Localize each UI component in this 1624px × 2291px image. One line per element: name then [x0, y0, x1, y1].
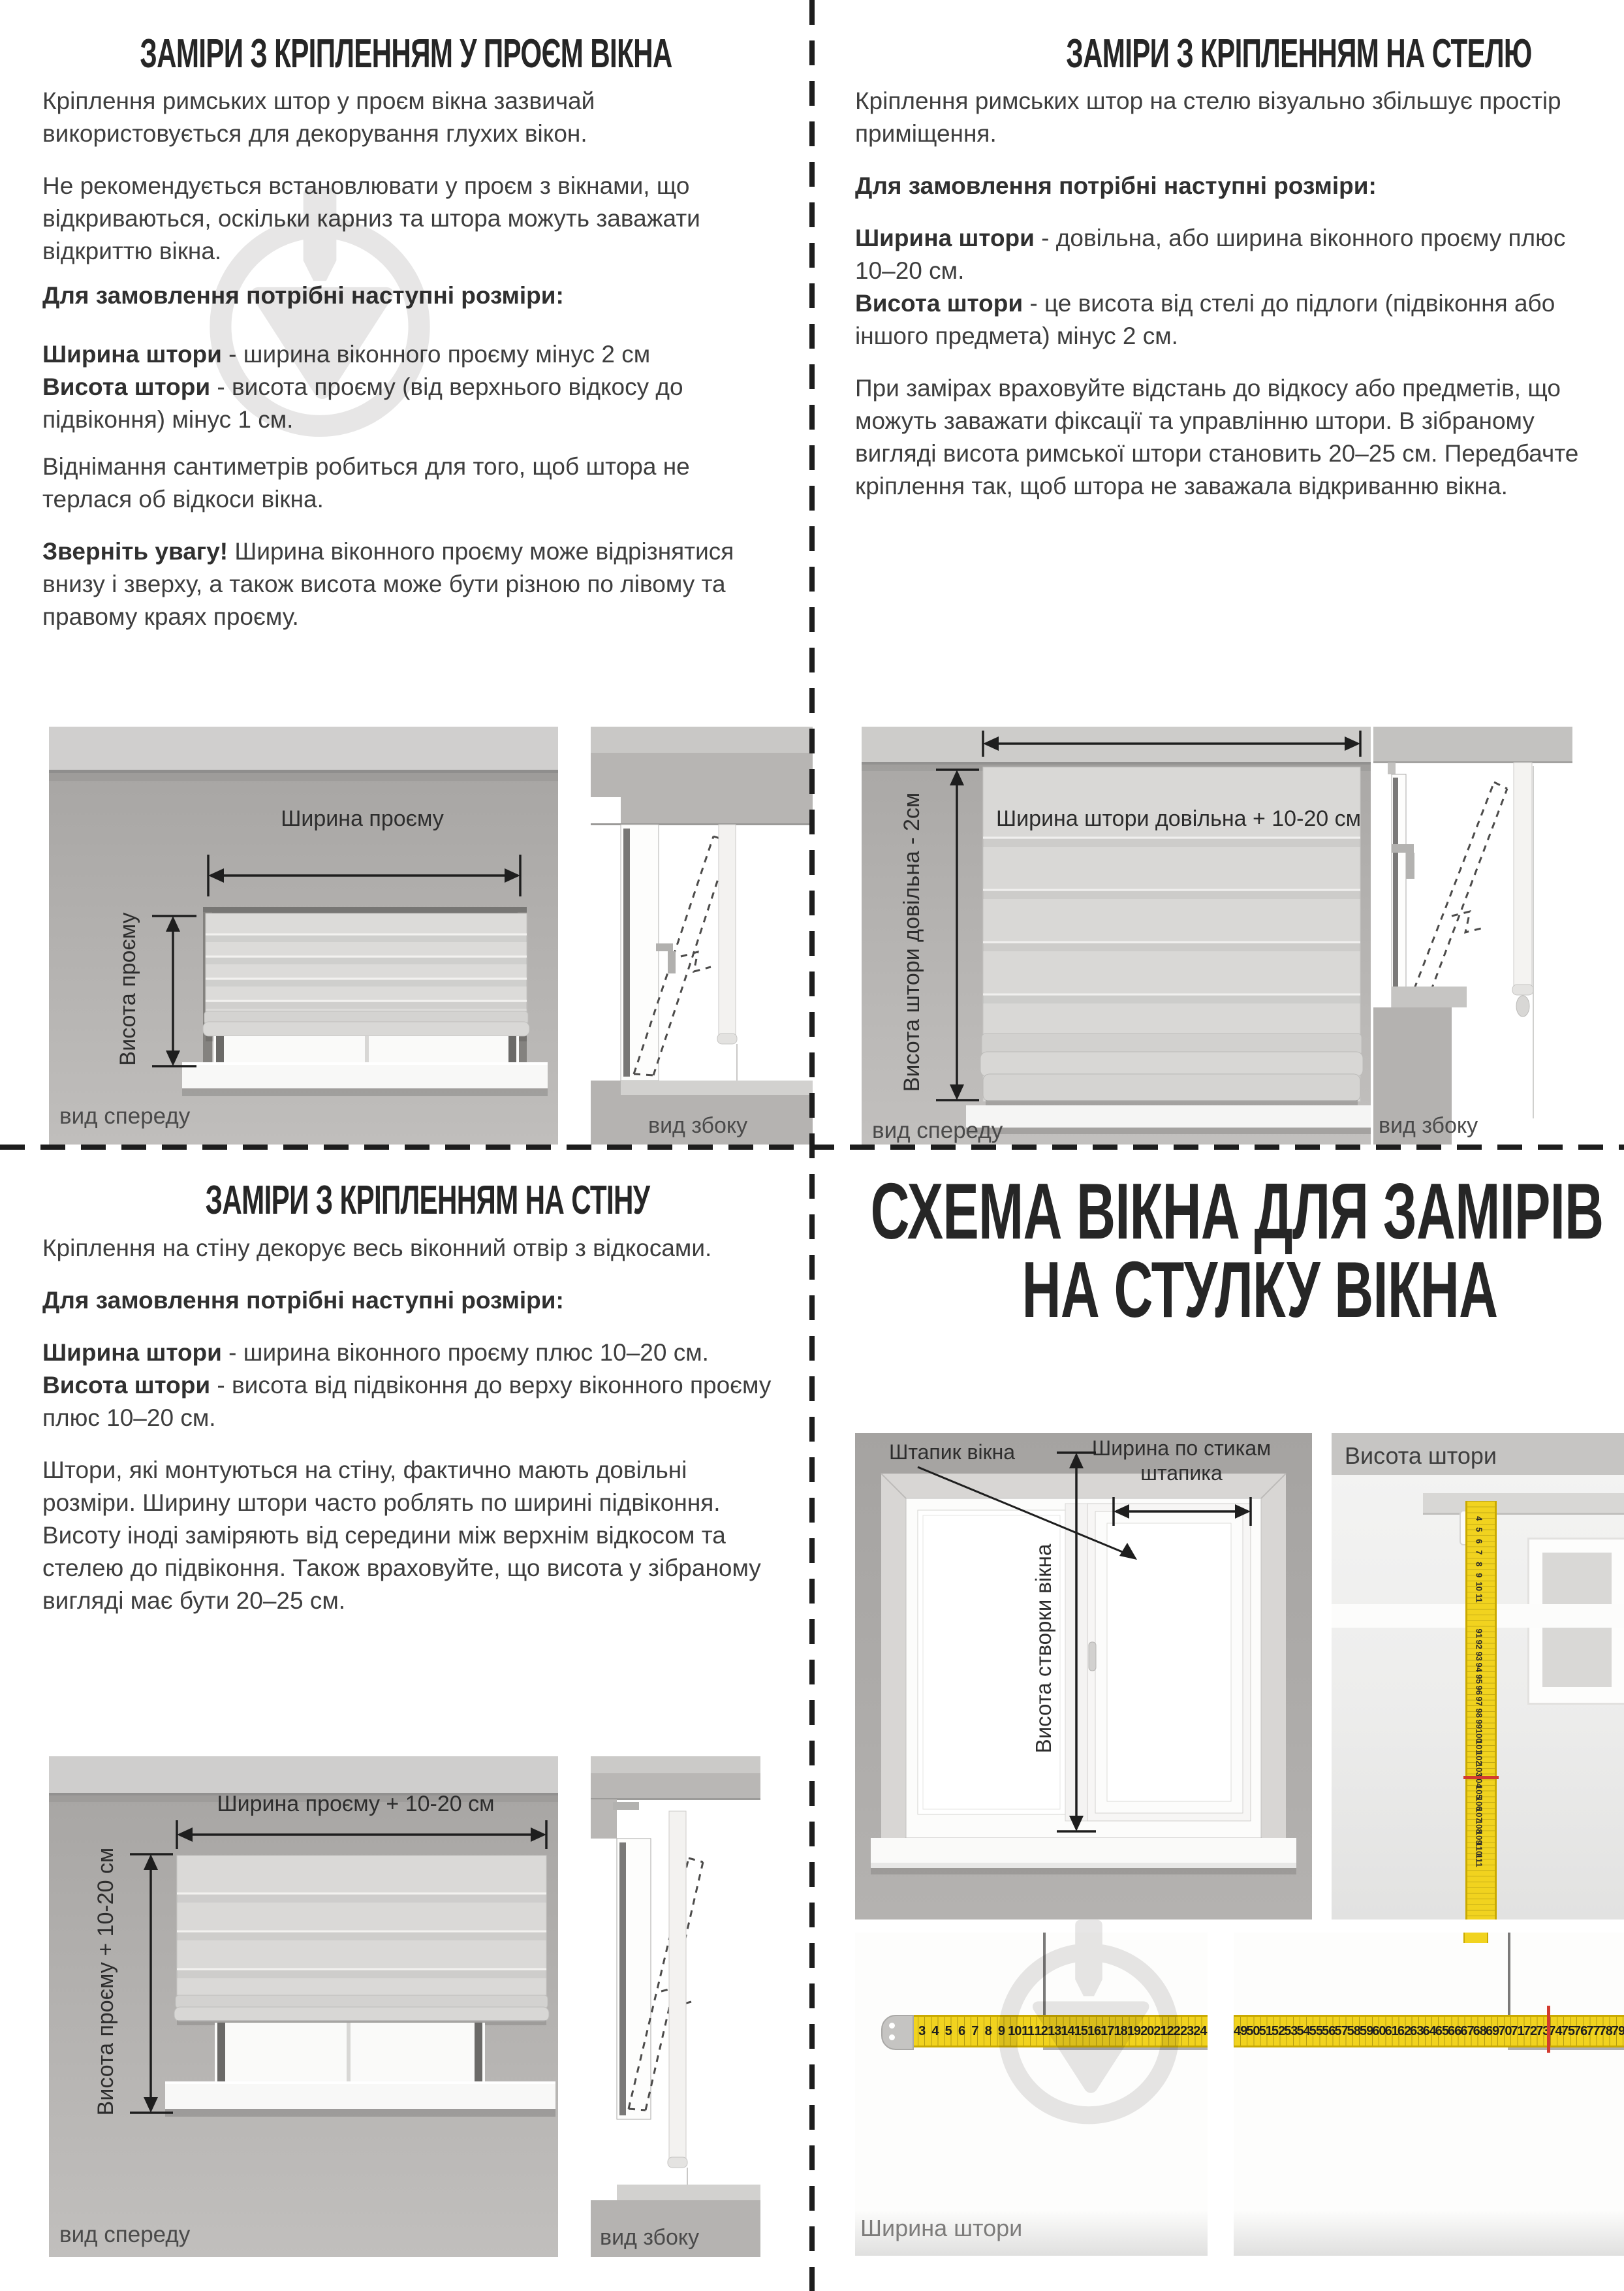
- opening-sash: [1087, 1504, 1251, 1821]
- paragraph: При замірах враховуйте відстань до відко…: [855, 372, 1587, 503]
- bead-width-label-line2: штапика: [1140, 1461, 1223, 1485]
- glazing-bead-label: Штапик вікна: [889, 1440, 1015, 1464]
- tape-number: 17: [1101, 2024, 1114, 2039]
- window-panel-left: [855, 1933, 1208, 2256]
- paragraph: Кріплення римських штор у проєм вікна за…: [42, 85, 775, 150]
- tape-number: 13: [1048, 2024, 1061, 2039]
- title-ceiling-mount: ЗАМІРИ З КРІПЛЕННЯМ НА СТЕЛЮ: [1066, 34, 1531, 74]
- roman-blind: [174, 1856, 549, 2025]
- paragraph: Для замовлення потрібні наступні розміри…: [855, 170, 1587, 202]
- tape-number: 52: [1272, 2024, 1284, 2039]
- tape-number: 24: [1193, 2024, 1206, 2039]
- tape-number: 60: [1372, 2024, 1384, 2039]
- tape-number: 75: [1561, 2024, 1574, 2039]
- tape-number: 57: [1334, 2024, 1347, 2039]
- bead-width-label-line1: Ширина по стикам: [1092, 1436, 1271, 1460]
- tape-number: 3: [915, 2024, 928, 2039]
- paragraph: Не рекомендується встановлювати у проєм …: [42, 170, 775, 268]
- paragraph: Висота штори - висота проєму (від верхнь…: [42, 371, 775, 436]
- tape-number: 66: [1448, 2024, 1460, 2039]
- window-sill: [966, 1105, 1371, 1128]
- paragraph: Для замовлення потрібні наступні розміри…: [42, 279, 775, 312]
- curtain-height-photo: 4567891011 91929394959697989910010110210…: [1332, 1433, 1624, 1920]
- title-opening-mount: ЗАМІРИ З КРІПЛЕННЯМ У ПРОЄМ ВІКНА: [140, 34, 672, 74]
- roman-blind: [203, 913, 529, 1041]
- tape-number: 23: [1180, 2024, 1193, 2039]
- paragraph: Кріплення римських штор на стелю візуаль…: [855, 85, 1587, 150]
- side-view-wall-mount: вид збоку: [591, 1756, 760, 2257]
- red-measurement-mark: [1463, 1776, 1499, 1779]
- horizontal-measuring-tape-left: 3456789101112131415161718192021222324: [911, 2015, 1208, 2047]
- tape-number: 22: [1167, 2024, 1180, 2039]
- tape-number: 15: [1074, 2024, 1087, 2039]
- window-sill: [871, 1838, 1296, 1874]
- paragraph: Штори, які монтуються на стіну, фактично…: [42, 1454, 775, 1617]
- paragraph: Ширина штори - ширина віконного проєму п…: [42, 1336, 775, 1369]
- tape-number: 61: [1385, 2024, 1398, 2039]
- tape-number: 20: [1140, 2024, 1153, 2039]
- opening-height-label: Висота проєму: [116, 912, 140, 1066]
- tape-number: 70: [1498, 2024, 1510, 2039]
- front-view-wall-mount: Ширина проєму + 10-20 см: [49, 1756, 558, 2257]
- tape-number: 56: [1322, 2024, 1334, 2039]
- curtain-width-photo: 3456789101112131415161718192021222324 49…: [855, 1933, 1624, 2256]
- paragraph: Висота штори - це висота від стелі до пі…: [855, 287, 1587, 353]
- tape-number: 19: [1127, 2024, 1140, 2039]
- window-sill: [165, 2081, 555, 2117]
- tape-number: 65: [1435, 2024, 1448, 2039]
- paragraph: Ширина штори - довільна, або ширина віко…: [855, 222, 1587, 287]
- tape-number: 4: [928, 2024, 941, 2039]
- side-view-caption: вид збоку: [648, 1113, 747, 1138]
- tape-number: 8: [981, 2024, 994, 2039]
- window-glass: [215, 2023, 485, 2081]
- text-block-wall-mount: Кріплення на стіну декорує весь віконний…: [42, 1232, 775, 1637]
- window-handle: [1089, 1642, 1096, 1671]
- tape-number: 79: [1612, 2024, 1624, 2039]
- window-sash-schematic: Штапик вікна Ширина по стикам штапика Ви…: [855, 1433, 1312, 1920]
- front-view-caption: вид спереду: [872, 1118, 1003, 1143]
- text-block-opening-mount: Кріплення римських штор у проєм вікна за…: [42, 85, 775, 653]
- side-view-caption: вид збоку: [1379, 1113, 1478, 1138]
- tape-number: 64: [1422, 2024, 1435, 2039]
- curtain-height-label: Висота штори довільна - 2см: [899, 793, 924, 1092]
- frame-edge: [1508, 2047, 1624, 2050]
- tape-number: 21: [1153, 2024, 1166, 2039]
- tape-number: 74: [1548, 2024, 1561, 2039]
- curtain-width-photo-label: Ширина штори: [860, 2215, 1022, 2242]
- tape-hook: [881, 2015, 914, 2050]
- window-panel-right: [1234, 1933, 1624, 2256]
- opening-width-label: Ширина проєму: [281, 806, 444, 831]
- tape-number: 59: [1360, 2024, 1372, 2039]
- tape-number: 6: [955, 2024, 968, 2039]
- tape-number: 11: [1473, 1586, 1484, 1609]
- horizontal-measuring-tape-right: 4950515253545556575859606162636465666768…: [1234, 2015, 1624, 2047]
- tape-number: 71: [1511, 2024, 1523, 2039]
- window-glass: [213, 1036, 519, 1062]
- horizontal-dashed-divider: [0, 1145, 1624, 1150]
- paragraph: Кріплення на стіну декорує весь віконний…: [42, 1232, 775, 1265]
- sash-height-label: Висота створки вікна: [1031, 1543, 1055, 1753]
- red-measurement-mark: [1547, 2006, 1550, 2053]
- tape-number: 68: [1473, 2024, 1486, 2039]
- tape-number: 54: [1296, 2024, 1309, 2039]
- title-wall-mount: ЗАМІРИ З КРІПЛЕННЯМ НА СТІНУ: [206, 1180, 650, 1221]
- frame-edge: [1043, 2047, 1208, 2050]
- ceiling-soffit: [1423, 1493, 1624, 1515]
- frame-edge: [1043, 1933, 1046, 2016]
- curtain-width-label: Ширина штори довільна + 10-20 см: [996, 806, 1361, 831]
- tape-number: 58: [1347, 2024, 1360, 2039]
- paragraph: Віднімання сантиметрів робиться для того…: [42, 450, 775, 516]
- window-sill: [182, 1062, 548, 1096]
- blind-profile: [668, 1811, 693, 2224]
- front-view-opening-mount: Ширина проєму: [49, 727, 558, 1145]
- front-view-ceiling-mount: Ширина штори довільна + 10-20 см Висота …: [862, 727, 1371, 1145]
- tape-number: 50: [1246, 2024, 1258, 2039]
- tape-number: 72: [1523, 2024, 1536, 2039]
- paragraph: Зверніть увагу! Ширина віконного проєму …: [42, 535, 775, 633]
- frame-edge: [1508, 1933, 1510, 2016]
- tape-numbers: 4950515253545556575859606162636465666768…: [1234, 2017, 1624, 2046]
- curtain-height-photo-label: Висота штори: [1345, 1442, 1497, 1470]
- opening-width-label: Ширина проєму + 10-20 см: [217, 1792, 494, 1816]
- paragraph: Висота штори - висота від підвіконня до …: [42, 1369, 775, 1434]
- tape-number: 11: [1021, 2024, 1034, 2039]
- tape-number: 9: [995, 2024, 1008, 2039]
- instruction-sheet: ЗАМІРИ З КРІПЛЕННЯМ У ПРОЄМ ВІКНА Кріпле…: [0, 0, 1624, 2291]
- front-view-caption: вид спереду: [59, 2222, 191, 2247]
- chain-weight: [1516, 996, 1529, 1017]
- tape-number: 78: [1599, 2024, 1612, 2039]
- tape-number: 12: [1035, 2024, 1048, 2039]
- tape-number: 67: [1460, 2024, 1473, 2039]
- tape-number: 77: [1586, 2024, 1599, 2039]
- title-sash-scheme-line1: СХЕМА ВІКНА ДЛЯ ЗАМІРІВ: [871, 1173, 1604, 1250]
- tape-number: 51: [1259, 2024, 1272, 2039]
- tape-numbers-top: 4567891011: [1467, 1513, 1491, 1604]
- tape-number: 5: [942, 2024, 955, 2039]
- opening-height-label: Висота проєму + 10-20 см: [93, 1848, 118, 2116]
- tape-number: 10: [1008, 2024, 1021, 2039]
- title-sash-scheme-line2: НА СТУЛКУ ВІКНА: [1022, 1251, 1498, 1328]
- tape-number: 18: [1114, 2024, 1127, 2039]
- text-block-ceiling-mount: Кріплення римських штор на стелю візуаль…: [855, 85, 1587, 522]
- tape-numbers-bottom: 9192939495969798991001011021031041051061…: [1467, 1628, 1491, 1866]
- tape-number: 53: [1284, 2024, 1296, 2039]
- vertical-measuring-tape: 4567891011 91929394959697989910010110210…: [1465, 1501, 1497, 1920]
- tape-number: 111: [1473, 1849, 1484, 1872]
- side-view-ceiling-mount: вид збоку: [1373, 727, 1608, 1145]
- tape-number: 16: [1087, 2024, 1101, 2039]
- side-view-opening-mount: вид збоку: [591, 727, 813, 1145]
- tape-number: 14: [1061, 2024, 1074, 2039]
- tape-number: 69: [1486, 2024, 1498, 2039]
- vertical-tape-tip: [1463, 1933, 1488, 1943]
- tape-number: 76: [1574, 2024, 1586, 2039]
- tape-number: 7: [968, 2024, 981, 2039]
- side-view-caption: вид збоку: [600, 2225, 699, 2250]
- paragraph: Для замовлення потрібні наступні розміри…: [42, 1284, 775, 1317]
- blind-profile: [1512, 763, 1533, 1118]
- tape-number: 55: [1309, 2024, 1322, 2039]
- panel-header: Висота штори: [1332, 1433, 1624, 1475]
- blind-profile: [717, 825, 742, 1106]
- front-view-caption: вид спереду: [59, 1103, 191, 1129]
- paragraph: Ширина штори - ширина віконного проєму м…: [42, 338, 775, 371]
- tape-number: 63: [1410, 2024, 1422, 2039]
- tape-number: 49: [1234, 2024, 1246, 2039]
- tape-numbers: 3456789101112131415161718192021222324: [915, 2017, 1207, 2046]
- tape-number: 62: [1398, 2024, 1410, 2039]
